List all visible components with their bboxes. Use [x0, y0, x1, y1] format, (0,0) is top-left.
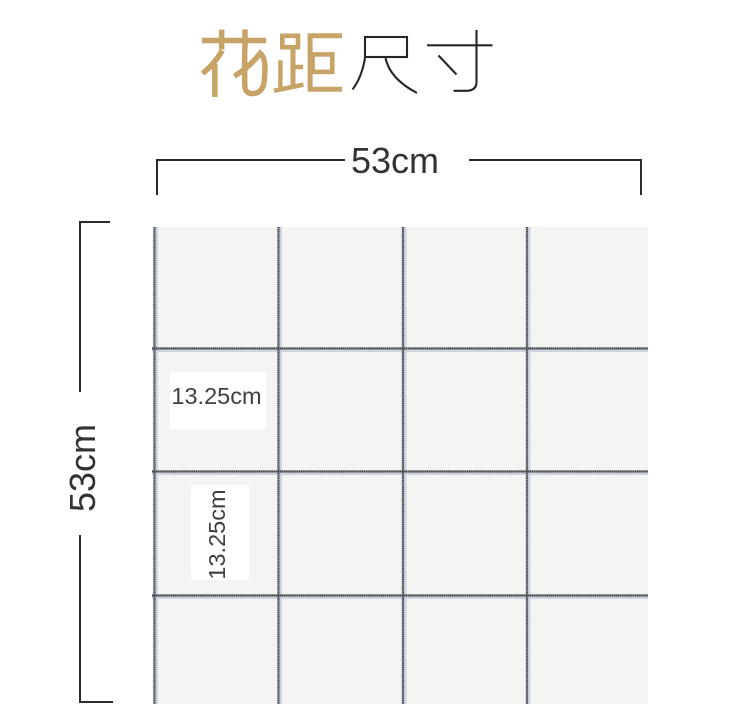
svg-text:13.25cm: 13.25cm — [204, 489, 230, 579]
svg-text:13.25cm: 13.25cm — [171, 383, 261, 409]
